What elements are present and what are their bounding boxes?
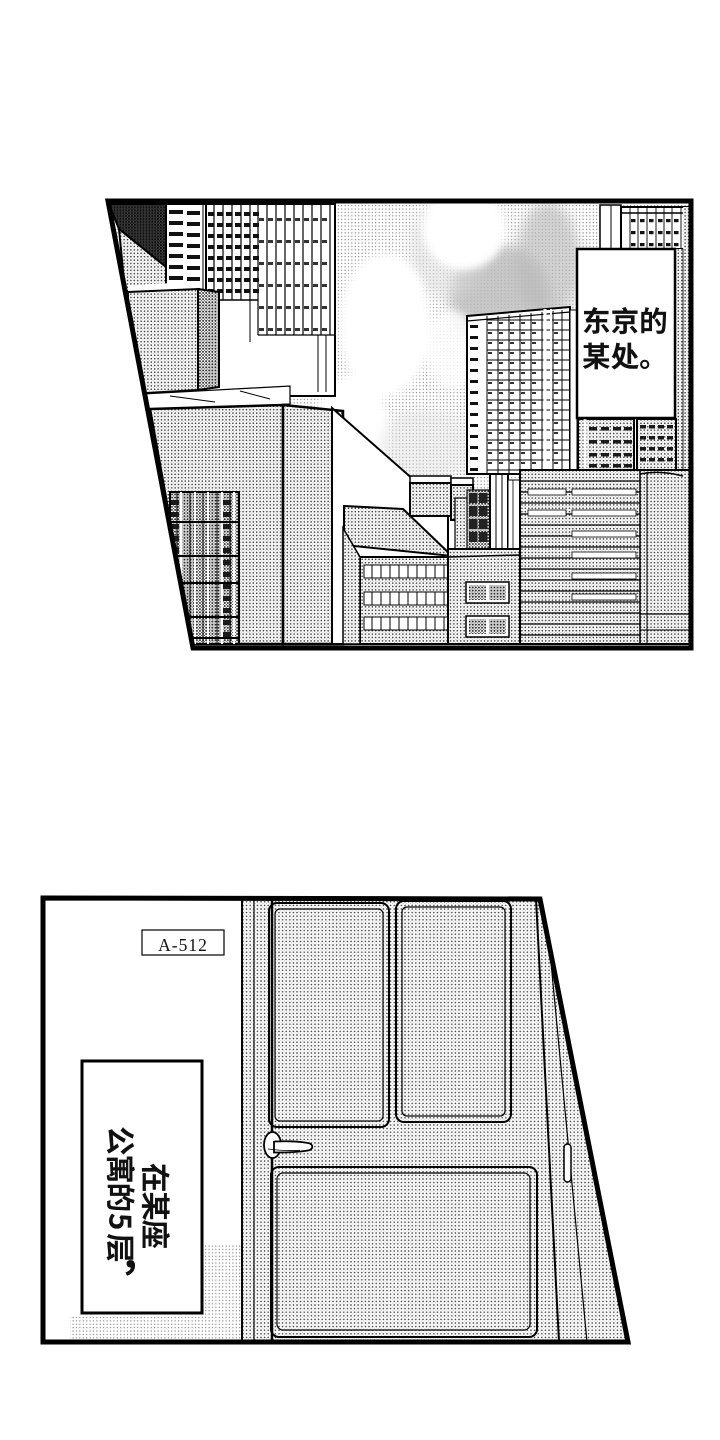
svg-text:A-512: A-512 (158, 935, 208, 955)
